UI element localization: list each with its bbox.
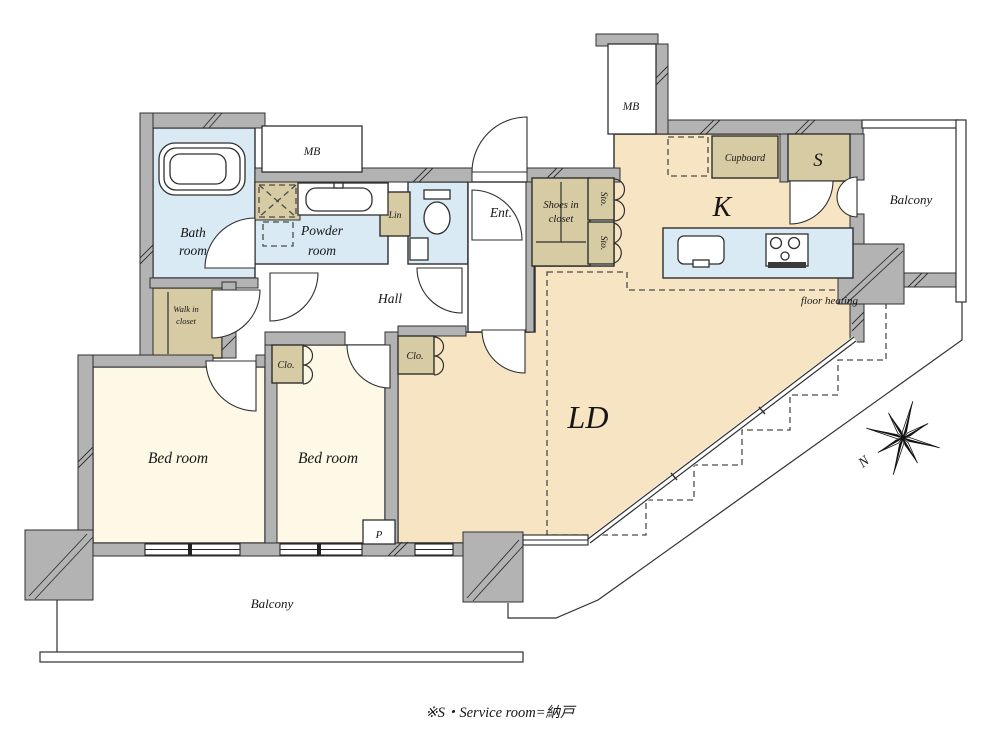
wall-right-lower — [850, 304, 864, 342]
pillar-bottom-right — [463, 532, 523, 602]
meter-box-top — [608, 44, 656, 134]
railing-bottom — [40, 652, 523, 662]
kitchen-counter — [663, 228, 853, 278]
window-bedroom2 — [280, 544, 362, 555]
wall-left-upper — [140, 113, 153, 367]
floor-plan-page: N Bath room MB MB Powder room Lin Ent. S… — [0, 0, 1000, 750]
wall-bedroom2-top-left — [265, 332, 345, 345]
wall-top-bath — [140, 113, 265, 128]
walkin-label-1: Walk in — [173, 304, 198, 314]
sto-upper-label: Sto. — [598, 192, 608, 207]
note-label: ※S・Service room=納戸 — [425, 704, 577, 721]
railing-right-top — [862, 120, 958, 128]
mb-top-label: MB — [622, 101, 640, 113]
shoes-label-1: Shoes in — [543, 200, 578, 211]
bathtub — [159, 143, 245, 195]
powder-label-1: Powder — [300, 223, 344, 238]
clo-bedroom2-label: Clo. — [278, 360, 295, 371]
clo-ld-label: Clo. — [407, 351, 424, 362]
wall-bedroom1-top-left — [93, 355, 213, 367]
kitchen-label: K — [712, 192, 733, 223]
window-ld-bottom — [523, 535, 588, 545]
powder-label-2: room — [308, 243, 336, 258]
wall-hall-bottom — [398, 326, 466, 336]
powder-room-door — [270, 273, 318, 321]
lin-label: Lin — [388, 211, 402, 221]
railing-right-side — [956, 120, 966, 302]
wall-cupboard-s — [780, 134, 788, 182]
balcony-bottom-label: Balcony — [251, 596, 294, 611]
floor-plan-drawing: N Bath room MB MB Powder room Lin Ent. S… — [0, 0, 1000, 750]
pipe-space-label: P — [375, 529, 383, 541]
toilet-door — [417, 268, 462, 313]
cupboard-label: Cupboard — [725, 153, 766, 164]
balcony-right-label: Balcony — [890, 192, 933, 207]
bath-label-2: room — [179, 243, 207, 258]
wall-right-upper — [850, 134, 864, 180]
grill — [768, 262, 806, 268]
wall-balcony-divider — [904, 273, 958, 287]
sto-lower-label: Sto. — [598, 236, 608, 251]
wall-bottom-bedrooms — [78, 543, 470, 556]
walkin-label-2: closet — [176, 316, 196, 326]
window-ld-south — [415, 544, 453, 555]
compass-north-label: N — [855, 453, 873, 472]
window-bedroom1 — [145, 544, 240, 555]
shoes-label-2: closet — [549, 214, 575, 225]
hall-label: Hall — [377, 291, 402, 306]
wall-left-bedroom — [78, 355, 93, 545]
ent-label: Ent. — [489, 205, 512, 220]
walkin-closet-door — [212, 290, 260, 338]
wall-bath-bottom — [150, 278, 258, 288]
service-room-label: S — [813, 150, 823, 171]
floor-heating-label: floor heating — [801, 295, 859, 307]
ld-label: LD — [567, 399, 609, 435]
entrance-door — [472, 117, 527, 172]
bedroom-center-label: Bed room — [298, 450, 358, 467]
bedroom-left-label: Bed room — [148, 450, 208, 467]
mb-left-label: MB — [303, 146, 321, 158]
washbasin — [298, 183, 388, 215]
bath-label-1: Bath — [180, 225, 206, 240]
